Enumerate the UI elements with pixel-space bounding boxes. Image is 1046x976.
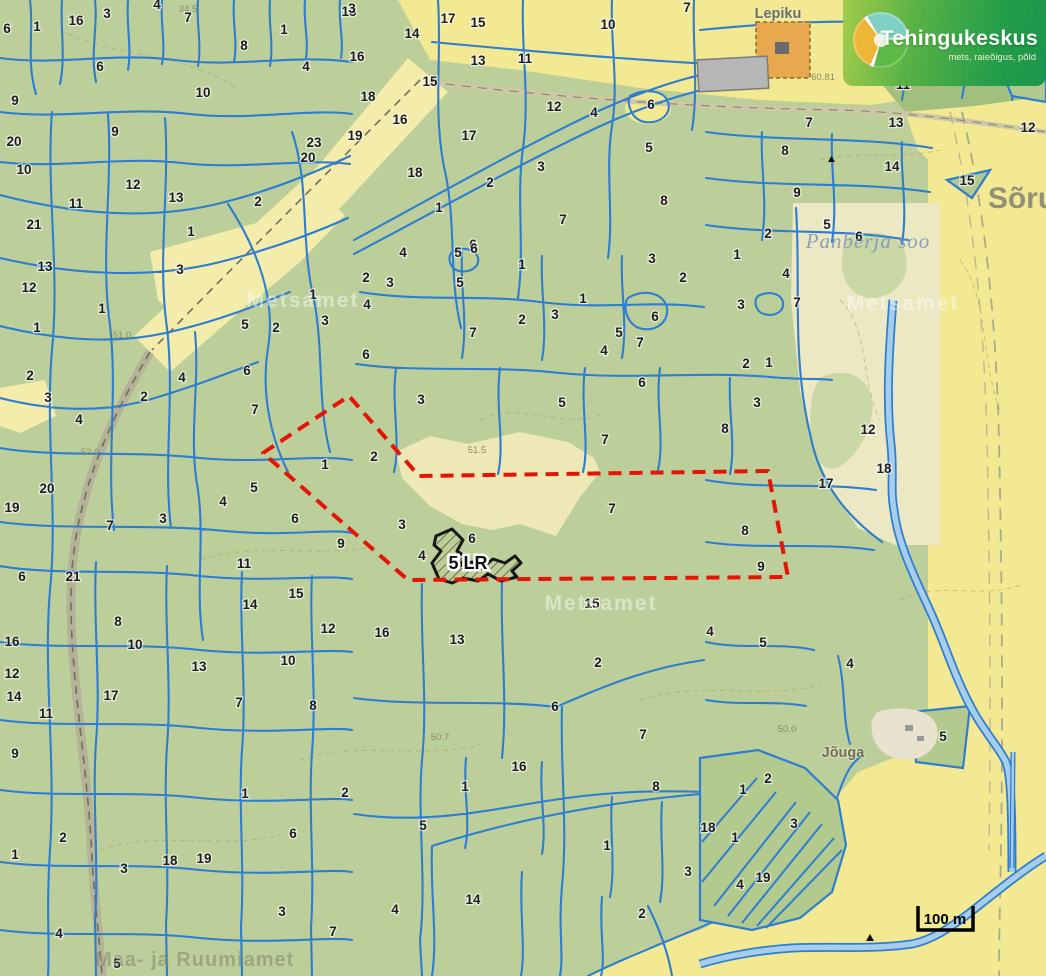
parcel-number: 3 [176,262,184,277]
parcel-number: 2 [764,226,772,241]
parcel-number: 4 [219,494,227,509]
parcel-number: 14 [404,26,420,41]
parcel-number: 1 [739,782,747,797]
parcel-number: 17 [440,11,455,26]
parcel-number: 21 [65,569,81,584]
parcel-number: 3 [790,816,798,831]
parcel-number: 4 [363,297,371,312]
parcel-number: 4 [782,266,790,281]
parcel-number: 3 [321,313,329,328]
selected-parcel-label: 5 LR [448,553,487,573]
parcel-number: 4 [736,877,744,892]
parcel-number: 3 [417,392,425,407]
parcel-number: 1 [33,19,41,34]
elevation-label: 51.0 [113,330,132,341]
parcel-number: 11 [69,196,84,211]
parcel-number: 5 [419,818,427,833]
parcel-number: 2 [594,655,602,670]
parcel-number: 15 [422,74,438,89]
parcel-number: 1 [765,355,773,370]
parcel-number: 17 [103,688,118,703]
parcel-number: 4 [706,624,714,639]
parcel-number: 7 [608,501,616,516]
parcel-number: 5 [241,317,249,332]
parcel-number: 6 [289,826,297,841]
parcel-number: 19 [196,851,211,866]
parcel-number: 15 [470,15,486,30]
parcel-number: 1 [518,257,526,272]
parcel-number: 1 [731,830,739,845]
parcel-number: 8 [781,143,789,158]
parcel-number: 1 [98,301,106,316]
parcel-number: 9 [11,93,19,108]
parcel-number: 6 [468,531,476,546]
parcel-number: 7 [601,432,609,447]
parcel-number: 4 [302,59,310,74]
parcel-number: 4 [55,926,63,941]
parcel-number: 3 [537,159,545,174]
parcel-number: 8 [240,38,248,53]
parcel-number: 6 [96,59,104,74]
parcel-number: 3 [648,251,656,266]
parcel-number: 12 [546,99,561,114]
parcel-number: 14 [6,689,22,704]
parcel-number: 9 [11,746,19,761]
parcel-number: 1 [187,224,195,239]
parcel-number: 12 [320,621,335,636]
parcel-number: 2 [742,356,750,371]
parcel-number: 19 [4,500,19,515]
parcel-number: 18 [360,89,376,104]
place-label: Jõuga [822,745,866,761]
parcel-number: 4 [418,548,426,563]
parcel-number: 16 [374,625,390,640]
parcel-number: 4 [600,343,608,358]
parcel-number: 13 [449,632,465,647]
parcel-number: 7 [639,727,647,742]
parcel-number: 16 [511,759,527,774]
parcel-number: 19 [347,128,362,143]
parcel-number: 1 [280,22,288,37]
parcel-number: 3 [348,1,356,16]
place-label: Lepiku [755,6,802,22]
parcel-number: 6 [470,241,478,256]
parcel-number: 7 [636,335,644,350]
parcel-number: 3 [398,517,406,532]
parcel-number: 13 [470,53,486,68]
parcel-number: 5 [454,245,462,260]
parcel-number: 13 [37,259,53,274]
parcel-number: 16 [4,634,20,649]
parcel-number: 2 [638,906,646,921]
parcel-number: 3 [159,511,167,526]
parcel-number: 3 [753,395,761,410]
brand-banner[interactable]: Tehingukeskus mets, raieõigus, põld [843,0,1046,86]
parcel-number: 2 [518,312,526,327]
map-viewport[interactable]: 6116347814691020923201012131122111331715… [0,0,1046,976]
parcel-number: 4 [590,105,598,120]
parcel-number: 1 [579,291,587,306]
parcel-number: 8 [114,614,122,629]
parcel-number: 6 [651,309,659,324]
parcel-number: 1 [241,786,249,801]
parcel-number: 8 [660,193,668,208]
parcel-number: 2 [679,270,687,285]
parcel-number: 6 [638,375,646,390]
parcel-number: 10 [16,162,31,177]
parcel-number: 12 [21,280,36,295]
agency-watermark: Maa- ja Ruumiamet [95,949,294,971]
parcel-number: 12 [1020,120,1035,135]
parcel-number: 2 [254,194,262,209]
parcel-number: 9 [757,559,765,574]
parcel-number: 14 [242,597,258,612]
parcel-number: 7 [251,402,259,417]
parcel-number: 14 [884,159,900,174]
parcel-number: 10 [127,637,142,652]
parcel-number: 18 [407,165,423,180]
parcel-number: 2 [362,270,370,285]
parcel-number: 3 [684,864,692,879]
parcel-number: 6 [291,511,299,526]
parcel-number: 8 [721,421,729,436]
parcel-number: 18 [700,820,716,835]
watermark: Metsamet [247,289,360,312]
parcel-number: 12 [860,422,875,437]
parcel-number: 16 [392,112,408,127]
elevation-label: 51.5 [468,445,487,456]
parcel-number: 11 [237,556,252,571]
watermark: Metsamet [847,292,960,315]
brand-tagline: mets, raieõigus, põld [948,52,1036,63]
parcel-number: 7 [106,518,114,533]
parcel-number: 4 [178,370,186,385]
parcel-number: 7 [793,295,801,310]
elevation-label: 50.7 [431,732,450,743]
parcel-number: 1 [461,779,469,794]
parcel-number: 2 [272,320,280,335]
parcel-number: 2 [59,830,67,845]
parcel-number: 17 [461,128,476,143]
place-label-large: Sõru [988,182,1046,215]
parcel-number: 11 [518,51,533,66]
parcel-number: 4 [399,245,407,260]
parcel-number: 7 [235,695,243,710]
map-canvas[interactable]: 6116347814691020923201012131122111331715… [0,0,1046,976]
parcel-number: 5 [615,325,623,340]
parcel-number: 11 [39,706,54,721]
parcel-number: 20 [39,481,54,496]
parcel-number: 2 [341,785,349,800]
parcel-number: 10 [280,653,295,668]
parcel-number: 3 [278,904,286,919]
parcel-number: 4 [75,412,83,427]
parcel-number: 8 [741,523,749,538]
parcel-number: 4 [846,656,854,671]
watermark: Metsamet [545,592,658,615]
parcel-number: 7 [559,212,567,227]
parcel-number: 12 [4,666,19,681]
parcel-number: 6 [551,699,559,714]
parcel-number: 9 [793,185,801,200]
parcel-number: 10 [195,85,210,100]
parcel-number: 16 [349,49,365,64]
parcel-number: 5 [759,635,767,650]
parcel-number: 1 [435,200,443,215]
parcel-number: 7 [805,115,813,130]
parcel-number: 6 [18,569,26,584]
parcel-number: 5 [456,275,464,290]
elevation-label: 52.0 [81,447,100,458]
parcel-number: 7 [329,924,337,939]
parcel-number: 20 [6,134,21,149]
parcel-number: 13 [191,659,207,674]
parcel-number: 18 [162,853,178,868]
parcel-number: 4 [153,0,161,12]
parcel-number: 20 [300,150,315,165]
elevation-label: 50.0 [778,724,797,735]
brand-title: Tehingukeskus [880,26,1038,51]
scale-label: 100 m [924,911,967,928]
parcel-number: 3 [120,861,128,876]
parcel-number: 2 [370,449,378,464]
elevation-label: 60.81 [811,72,835,83]
parcel-number: 2 [486,175,494,190]
parcel-number: 6 [647,97,655,112]
parcel-number: 8 [652,779,660,794]
parcel-number: 3 [44,390,52,405]
parcel-number: 1 [603,838,611,853]
parcel-number: 9 [111,124,119,139]
parcel-number: 6 [3,21,11,36]
parcel-number: 1 [321,457,329,472]
parcel-number: 6 [243,363,251,378]
parcel-number: 7 [683,0,691,15]
parcel-number: 19 [755,870,770,885]
parcel-number: 5 [250,480,258,495]
parcel-number: 6 [362,347,370,362]
parcel-number: 13 [888,115,904,130]
parcel-number: 3 [737,297,745,312]
parcel-number: 1 [33,320,41,335]
parcel-number: 14 [465,892,481,907]
parcel-number: 5 [558,395,566,410]
parcel-number: 4 [391,902,399,917]
parcel-number: 2 [764,771,772,786]
parcel-number: 9 [337,536,345,551]
parcel-number: 1 [11,847,19,862]
parcel-number: 16 [68,13,84,28]
parcel-number: 7 [469,325,477,340]
parcel-number: 12 [125,177,140,192]
parcel-number: 13 [168,190,184,205]
parcel-number: 23 [306,135,322,150]
elevation-label: 34.5 [179,4,198,15]
parcel-number: 15 [288,586,304,601]
parcel-number: 3 [103,6,111,21]
parcel-number: 10 [600,17,615,32]
parcel-number: 21 [26,217,42,232]
parcel-number: 15 [959,173,975,188]
parcel-number: 1 [733,247,741,262]
parcel-number: 3 [386,275,394,290]
parcel-number: 3 [551,307,559,322]
marsh-label: Panberja soo [805,229,931,253]
parcel-number: 8 [309,698,317,713]
parcel-number: 17 [818,476,833,491]
parcel-number: 18 [876,461,892,476]
parcel-number: 2 [26,368,34,383]
parcel-number: 5 [645,140,653,155]
parcel-number: 2 [140,389,148,404]
parcel-number: 5 [939,729,947,744]
